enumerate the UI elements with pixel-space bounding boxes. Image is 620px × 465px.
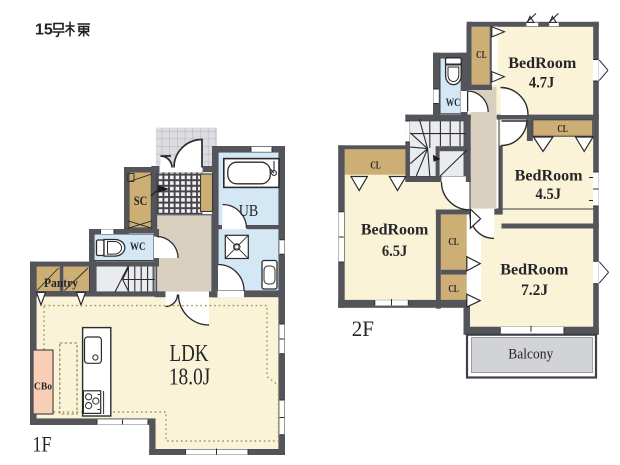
svg-text:UB: UB: [239, 201, 259, 220]
svg-text:BedRoom: BedRoom: [500, 262, 569, 279]
svg-text:7.2J: 7.2J: [521, 282, 548, 299]
svg-text:BedRoom: BedRoom: [515, 168, 584, 185]
svg-text:Pantry: Pantry: [44, 276, 79, 290]
svg-text:4.5J: 4.5J: [536, 186, 562, 203]
svg-text:CL: CL: [448, 237, 459, 248]
svg-text:WC: WC: [130, 239, 146, 253]
svg-text:2F: 2F: [352, 316, 374, 341]
svg-text:1F: 1F: [33, 432, 52, 457]
svg-text:LDK: LDK: [170, 341, 210, 367]
svg-text:SC: SC: [134, 194, 148, 208]
svg-text:Balcony: Balcony: [508, 347, 553, 363]
svg-text:WC: WC: [446, 95, 461, 109]
svg-text:15: 15: [35, 22, 53, 39]
svg-text:CBo: CBo: [34, 382, 52, 393]
svg-text:18.0J: 18.0J: [169, 365, 211, 391]
svg-text:CL: CL: [448, 284, 459, 295]
svg-text:BedRoom: BedRoom: [508, 55, 577, 72]
svg-text:BedRoom: BedRoom: [361, 222, 429, 239]
svg-text:CL: CL: [370, 161, 381, 172]
svg-text:6.5J: 6.5J: [382, 243, 408, 260]
svg-text:CL: CL: [476, 50, 487, 61]
svg-text:4.7J: 4.7J: [529, 75, 555, 92]
svg-text:CL: CL: [557, 124, 568, 135]
